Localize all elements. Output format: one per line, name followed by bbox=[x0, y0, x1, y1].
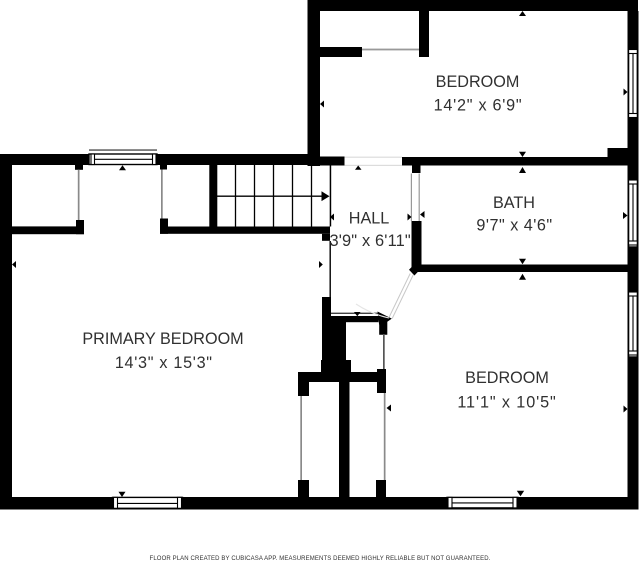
svg-text:HALL: HALL bbox=[349, 210, 390, 228]
svg-text:BEDROOM: BEDROOM bbox=[465, 369, 549, 387]
svg-text:3'9" x 6'11": 3'9" x 6'11" bbox=[330, 232, 411, 250]
svg-text:PRIMARY BEDROOM: PRIMARY BEDROOM bbox=[82, 330, 243, 348]
svg-text:11'1" x 10'5": 11'1" x 10'5" bbox=[457, 394, 556, 412]
svg-text:FLOOR PLAN CREATED BY CUBICASA: FLOOR PLAN CREATED BY CUBICASA APP. MEAS… bbox=[150, 556, 491, 562]
svg-text:9'7" x 4'6": 9'7" x 4'6" bbox=[476, 217, 552, 235]
svg-text:14'3" x 15'3": 14'3" x 15'3" bbox=[115, 354, 213, 372]
svg-text:BEDROOM: BEDROOM bbox=[436, 73, 520, 91]
svg-text:14'2" x 6'9": 14'2" x 6'9" bbox=[434, 97, 523, 115]
svg-text:BATH: BATH bbox=[493, 194, 535, 212]
